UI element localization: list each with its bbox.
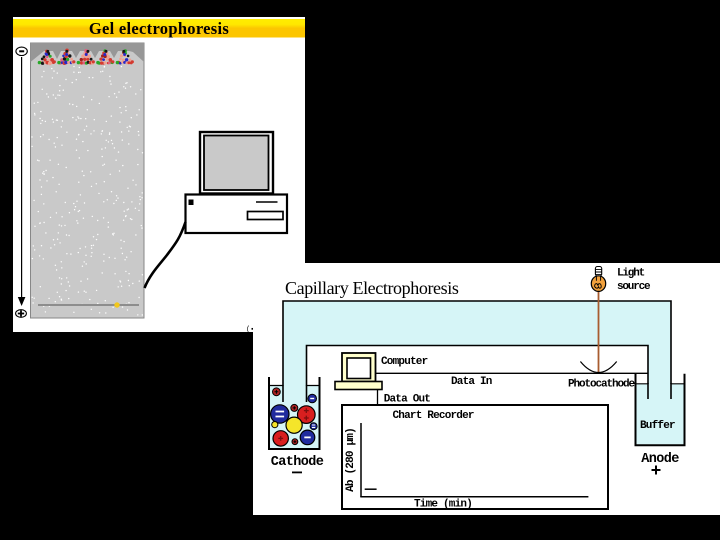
svg-text:Ab (280 μm): Ab (280 μm) xyxy=(345,428,357,492)
svg-text:Time (min): Time (min) xyxy=(414,499,472,511)
svg-text:Gel electrophoresis: Gel electrophoresis xyxy=(89,19,230,38)
svg-text:Photocathode: Photocathode xyxy=(568,379,636,391)
svg-text:Buffer: Buffer xyxy=(640,420,675,432)
svg-text:Chart Recorder: Chart Recorder xyxy=(393,410,474,422)
svg-text:Data Out: Data Out xyxy=(384,394,431,406)
svg-text:Cathode: Cathode xyxy=(271,455,324,470)
svg-text:source: source xyxy=(617,281,651,293)
svg-text:Computer: Computer xyxy=(381,356,428,368)
svg-text:Anode: Anode xyxy=(641,452,679,467)
svg-text:Capillary Electrophoresis: Capillary Electrophoresis xyxy=(285,278,459,298)
svg-text:Data In: Data In xyxy=(451,376,492,388)
svg-text:Light: Light xyxy=(617,268,645,280)
